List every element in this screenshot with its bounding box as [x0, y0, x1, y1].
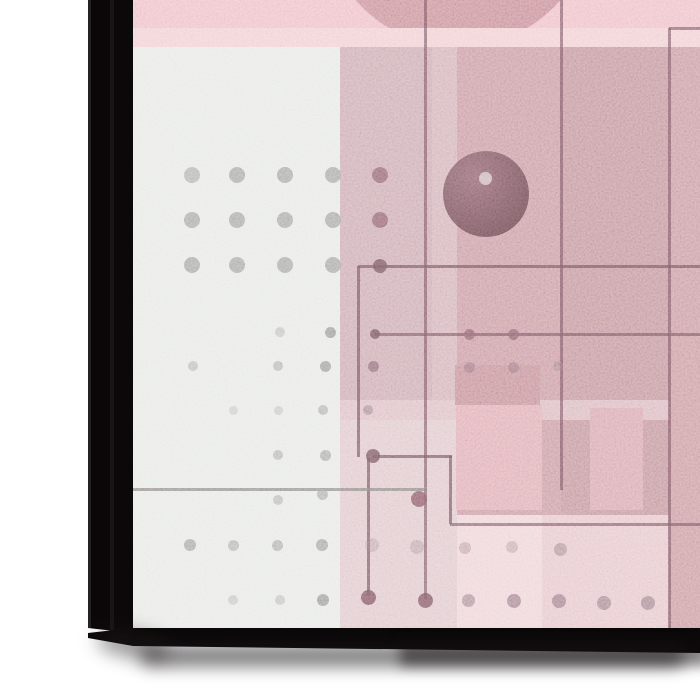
line-h-266	[358, 265, 700, 268]
dark-sphere	[443, 151, 529, 237]
grid-dot	[325, 212, 341, 228]
node-dot	[411, 491, 427, 507]
line-vert-425	[424, 0, 427, 599]
node-dot	[508, 329, 519, 340]
line-vert-450	[449, 456, 452, 524]
grid-dot	[372, 212, 388, 228]
right-edge-column	[669, 333, 700, 628]
node-dot	[361, 590, 376, 605]
scatter-dot	[316, 539, 328, 551]
frame-bottom-edge	[88, 628, 700, 660]
grid-dot	[325, 167, 341, 183]
grid-dot	[277, 212, 293, 228]
grid-dot	[372, 167, 388, 183]
scatter-dot	[597, 596, 611, 610]
frame-left-edge	[88, 0, 133, 633]
scatter-dot	[506, 541, 518, 553]
scatter-dot	[368, 361, 379, 372]
grid-dot	[277, 257, 293, 273]
line-h-489	[133, 488, 425, 491]
scatter-dot	[365, 538, 379, 552]
scatter-dot	[318, 405, 328, 415]
salmon-block	[456, 405, 542, 510]
node-dot	[373, 259, 387, 273]
mauve-sliver	[432, 47, 457, 400]
scatter-dot	[273, 361, 283, 371]
grid-dot	[184, 257, 200, 273]
scatter-dot	[317, 594, 329, 606]
line-h-456	[373, 455, 452, 458]
grid-dot	[229, 167, 245, 183]
scatter-dot	[320, 361, 331, 372]
line-vert-669	[668, 28, 671, 628]
node-dot	[418, 593, 433, 608]
scatter-dot	[275, 595, 285, 605]
canvas-artwork	[133, 0, 700, 628]
line-top-right	[669, 27, 700, 30]
line-h-334	[375, 333, 700, 336]
scatter-dot	[317, 489, 328, 500]
scatter-dot	[462, 594, 475, 607]
scatter-dot	[507, 594, 521, 608]
scatter-dot	[552, 594, 566, 608]
grid-dot	[184, 167, 200, 183]
scatter-dot	[553, 361, 563, 371]
line-vert-368	[367, 458, 370, 596]
grid-dot	[277, 167, 293, 183]
scatter-dot	[274, 406, 283, 415]
grid-dot	[184, 212, 200, 228]
grid-dot	[325, 257, 341, 273]
rose-block-right	[590, 408, 643, 510]
node-dot	[464, 329, 475, 340]
scatter-dot	[229, 406, 238, 415]
scatter-dot	[325, 327, 336, 338]
scatter-dot	[410, 540, 424, 554]
scatter-dot	[641, 596, 655, 610]
scatter-dot	[459, 542, 471, 554]
canvas-print-mockup	[0, 0, 700, 700]
scatter-dot	[273, 495, 283, 505]
line-vert-358	[357, 266, 360, 457]
scatter-dot	[228, 595, 238, 605]
pale-bottom-column	[457, 515, 542, 628]
light-pink-band	[133, 28, 700, 47]
node-dot	[370, 329, 380, 339]
line-h-524	[450, 523, 700, 526]
scatter-dot	[273, 450, 283, 460]
node-dot	[366, 449, 380, 463]
scatter-dot	[320, 450, 331, 461]
grid-dot	[229, 212, 245, 228]
scatter-dot	[188, 361, 198, 371]
scatter-dot	[464, 362, 475, 373]
scatter-dot	[184, 539, 196, 551]
scatter-dot	[554, 543, 567, 556]
scatter-dot	[272, 540, 283, 551]
line-vert-561	[560, 0, 563, 490]
scatter-dot	[275, 327, 285, 337]
scatter-dot	[228, 540, 239, 551]
grid-dot	[229, 257, 245, 273]
scatter-dot	[363, 405, 373, 415]
sphere-highlight	[479, 172, 492, 185]
scatter-dot	[508, 362, 519, 373]
